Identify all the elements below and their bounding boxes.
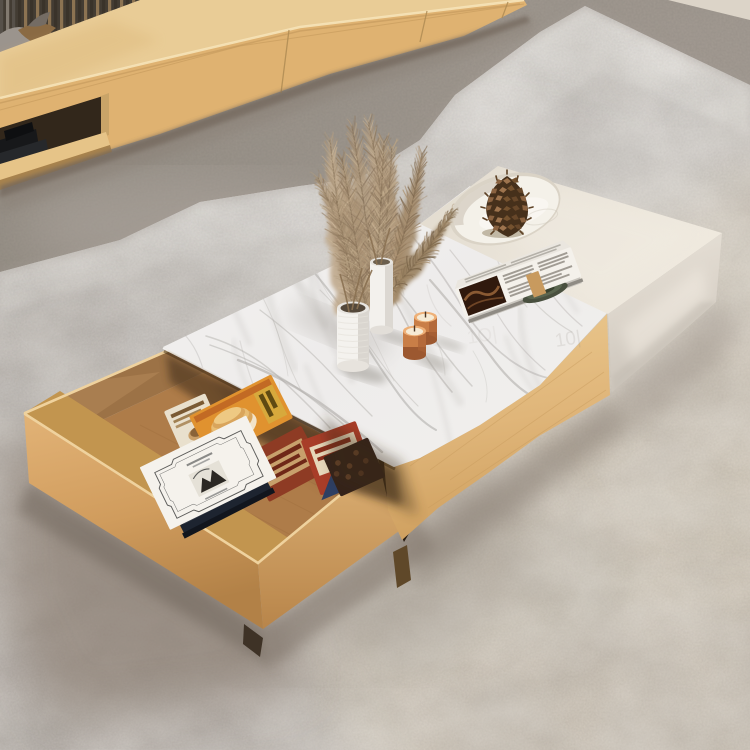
svg-text:10|: 10|: [553, 327, 582, 352]
